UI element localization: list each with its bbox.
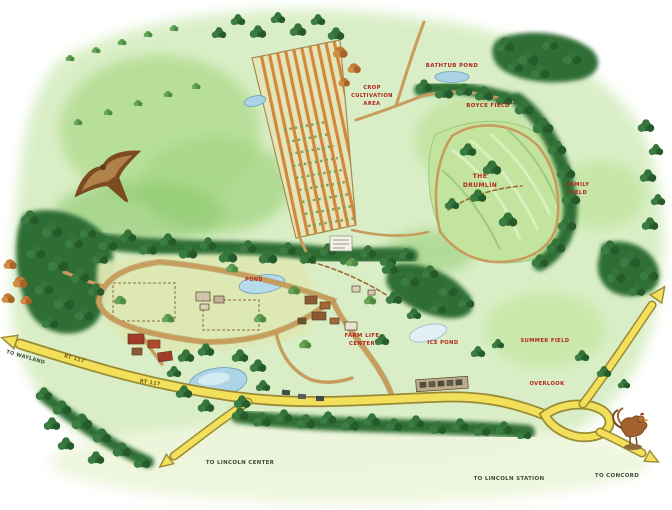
label-summer-field: SUMMER FIELD bbox=[520, 338, 569, 344]
label-to-concord: TO CONCORD bbox=[595, 473, 639, 479]
label-crop-area-3: AREA bbox=[363, 101, 380, 107]
label-family-field-2: FIELD bbox=[569, 190, 588, 196]
illustrated-park-map: BATHTUB POND BOYCE FIELD CROP CULTIVATIO… bbox=[0, 0, 672, 510]
label-to-lincoln-center: TO LINCOLN CENTER bbox=[206, 460, 275, 466]
label-ice-pond: ICE POND bbox=[427, 340, 458, 346]
label-farm-life-center-1: FARM LIFE bbox=[344, 333, 379, 339]
label-farm-life-center-2: CENTER bbox=[349, 341, 376, 347]
label-overlook: OVERLOOK bbox=[530, 381, 566, 387]
bathtub-pond bbox=[435, 72, 469, 83]
label-the-drumlin-2: DRUMLIN bbox=[463, 182, 497, 189]
label-farm-pond: POND bbox=[245, 277, 263, 283]
label-crop-area-1: CROP bbox=[363, 85, 381, 91]
label-to-lincoln-station: TO LINCOLN STATION bbox=[474, 476, 545, 482]
label-bathtub-pond: BATHTUB POND bbox=[426, 63, 479, 69]
label-boyce-field: BOYCE FIELD bbox=[466, 103, 510, 109]
label-the-drumlin-1: THE bbox=[473, 173, 487, 180]
map-canvas: BATHTUB POND BOYCE FIELD CROP CULTIVATIO… bbox=[0, 0, 672, 510]
label-family-field-1: FAMILY bbox=[567, 182, 590, 188]
label-crop-area-2: CULTIVATION bbox=[351, 93, 393, 99]
trail-sign bbox=[330, 236, 352, 251]
